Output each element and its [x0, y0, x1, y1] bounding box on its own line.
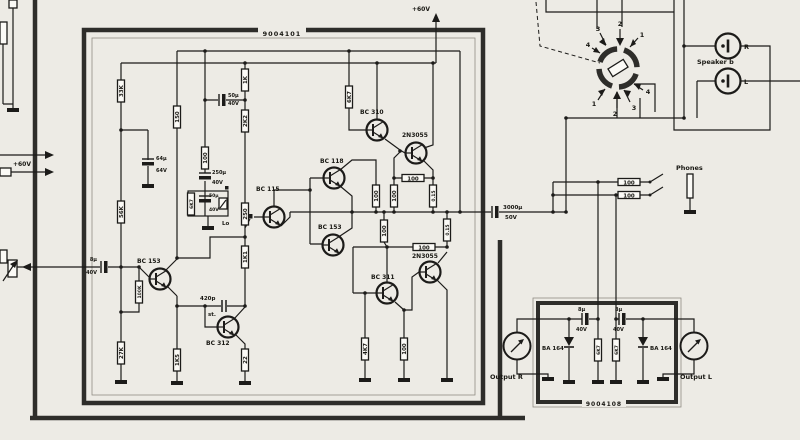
diode-d2: [638, 337, 648, 347]
phones-jack: [687, 174, 693, 198]
transistor-q4: [264, 207, 285, 228]
output-board: 8μ 40V 8μ 40V 6K7 6K7 BA 164 BA 164 Outp…: [490, 307, 712, 384]
resistor-r17-label: 0.15: [431, 190, 437, 201]
cap-c6: [492, 206, 499, 218]
output-l-label: Output L: [680, 373, 712, 381]
transistor-q4-label: BC 115: [256, 186, 280, 193]
cap-c2-value: 64μ: [156, 156, 167, 162]
transistor-q9: [218, 317, 239, 338]
main-board-number: 9004101: [263, 30, 302, 38]
speaker-b-label: Speaker b: [697, 58, 734, 66]
cap-c6-voltage: 50V: [505, 215, 518, 221]
cap-c9-value: 8μ: [615, 307, 622, 313]
transistor-q2: [406, 143, 427, 164]
resistor-r13-label: 22: [243, 356, 249, 364]
resistor-r10-label: 100K: [137, 285, 143, 298]
input-coupling-cap: [101, 261, 108, 273]
supply-left-label: +60V: [13, 161, 31, 168]
output-board-inner-line: [533, 298, 681, 407]
cap-c8-value: 8μ: [578, 307, 585, 313]
resistor-r23-label: 100: [418, 246, 430, 252]
speaker-l-label: L: [744, 78, 748, 86]
output-socket-l[interactable]: [681, 333, 708, 360]
selector-pos-top-2: 2: [618, 20, 623, 28]
resistor-r18-label: 100: [382, 225, 388, 237]
cap-c4-value: 50μ: [209, 193, 219, 199]
cap-c1: [219, 94, 226, 106]
speaker-selector: 3 2 1 4 1 2 3 4 R L Speaker b: [536, 0, 800, 130]
speaker-r-label: R: [744, 43, 749, 51]
resistor-r20-label: 4K7: [363, 343, 369, 355]
diode-d2-label: BA 164: [650, 346, 672, 352]
output-board-frame: [538, 303, 676, 402]
cap-c3: [199, 173, 211, 180]
left-resistor-partial-top: [9, 0, 17, 8]
selector-pos-bottom-2: 2: [613, 110, 618, 118]
cap-c1-voltage: 40V: [228, 101, 239, 107]
resistor-r21-label: 100: [402, 343, 408, 355]
cap-c5-st-label: st.: [208, 312, 216, 318]
resistor-r11-label: 27K: [119, 346, 125, 359]
cap-c9: [619, 313, 626, 325]
transistor-q8-label: 2N3055: [412, 253, 438, 260]
selector-pos-top-3: 3: [596, 25, 601, 33]
cap-c6-value: 3000μ: [503, 205, 522, 211]
speaker-socket-r[interactable]: [716, 34, 741, 59]
transistor-q1: [367, 120, 388, 141]
resistor-r14-label: 6K7: [189, 199, 195, 209]
output-line-phones: 3000μ 50V 100 100 Phones: [483, 118, 703, 319]
cap-c3-value: 250μ: [212, 170, 226, 176]
transistor-q8: [420, 262, 441, 283]
cap-c8: [582, 313, 589, 325]
resistor-r3-label: 1K: [243, 75, 249, 84]
speaker-socket-l[interactable]: [716, 69, 741, 94]
left-inline-component: [0, 168, 11, 176]
resistor-r4-label: 2K2: [243, 115, 249, 127]
resistor-r6-label: 100: [203, 152, 209, 164]
selector-pos-bottom-3: 3: [632, 104, 637, 112]
main-board-wires: +60V: [121, 6, 483, 381]
resistor-r24-label: 100: [623, 181, 635, 187]
output-socket-r[interactable]: [504, 333, 531, 360]
transistor-q7: [377, 283, 398, 304]
transistor-q6: [323, 235, 344, 256]
transistor-q9-label: BC 312: [206, 340, 230, 347]
selector-pos-bottom-4: 4: [646, 88, 651, 96]
resistor-r2-label: 150: [175, 111, 181, 123]
cap-c3-voltage: 40V: [212, 180, 223, 186]
cap-c8-voltage: 40V: [576, 327, 587, 333]
transistor-q3-label: BC 118: [320, 158, 344, 165]
resistor-r25-label: 100: [623, 194, 635, 200]
transistor-q3: [324, 168, 345, 189]
lo-label: Lo: [222, 221, 230, 227]
left-offboard: +60V 8μ 40V: [0, 0, 139, 281]
output-board-number: 9004108: [586, 401, 622, 408]
transistor-q5: [150, 269, 171, 290]
resistor-r27-label: 6K7: [614, 345, 620, 355]
selector-rotor[interactable]: [608, 59, 628, 76]
cap-c1-value: 50μ: [228, 93, 239, 99]
cap-c2-voltage: 64V: [156, 168, 167, 174]
resistor-r22-label: 100: [407, 177, 419, 183]
output-r-label: Output R: [490, 373, 523, 381]
cap-c7-value: 8μ: [90, 257, 97, 263]
cap-c5-value: 420p: [200, 296, 215, 302]
selector-pos-bottom-1: 1: [592, 100, 597, 108]
resistor-r9-label: 1K1: [243, 251, 249, 263]
resistor-r7-label: 56K: [119, 205, 125, 218]
cap-c9-voltage: 40V: [613, 327, 624, 333]
selector-pos-top-4: 4: [586, 41, 591, 49]
left-resistor-partial: [0, 22, 7, 44]
cap-c7-voltage: 40V: [86, 270, 97, 276]
ground-pad: [7, 108, 19, 112]
amplifier-schematic: 9004101 9004108 +60V 8μ 40V +60V 6K7: [0, 0, 800, 440]
resistor-r26-label: 6K7: [596, 345, 602, 355]
phones-label: Phones: [676, 164, 703, 172]
transistor-q2-label: 2N3055: [402, 132, 428, 139]
supply-top-label: +60V: [412, 6, 430, 13]
transistors: BC 310 2N3055 BC 118 BC 115 BC 153 BC 15…: [137, 109, 441, 347]
input-pot-partial: [0, 250, 7, 263]
resistor-r5-label: 6K7: [347, 91, 353, 103]
resistor-r12-label: 1K5: [175, 354, 181, 366]
transistor-q6-label: BC 153: [318, 224, 342, 231]
resistor-r15-label: 100: [374, 190, 380, 202]
cap-c4-voltage: 40V: [209, 207, 219, 213]
transistor-q5-label: BC 153: [137, 258, 161, 265]
resistor-r16-label: 100: [392, 190, 398, 202]
diode-d1-label: BA 164: [542, 346, 564, 352]
transistor-q1-label: BC 310: [360, 109, 384, 116]
selector-pos-top-1: 1: [640, 31, 645, 39]
resistor-r19-label: 0.15: [445, 224, 451, 235]
resistor-r1-label: 33K: [119, 84, 125, 97]
diode-d1: [564, 337, 574, 347]
schematic-page: 9004101 9004108 +60V 8μ 40V +60V 6K7: [0, 0, 800, 440]
transistor-q7-label: BC 311: [371, 274, 395, 281]
